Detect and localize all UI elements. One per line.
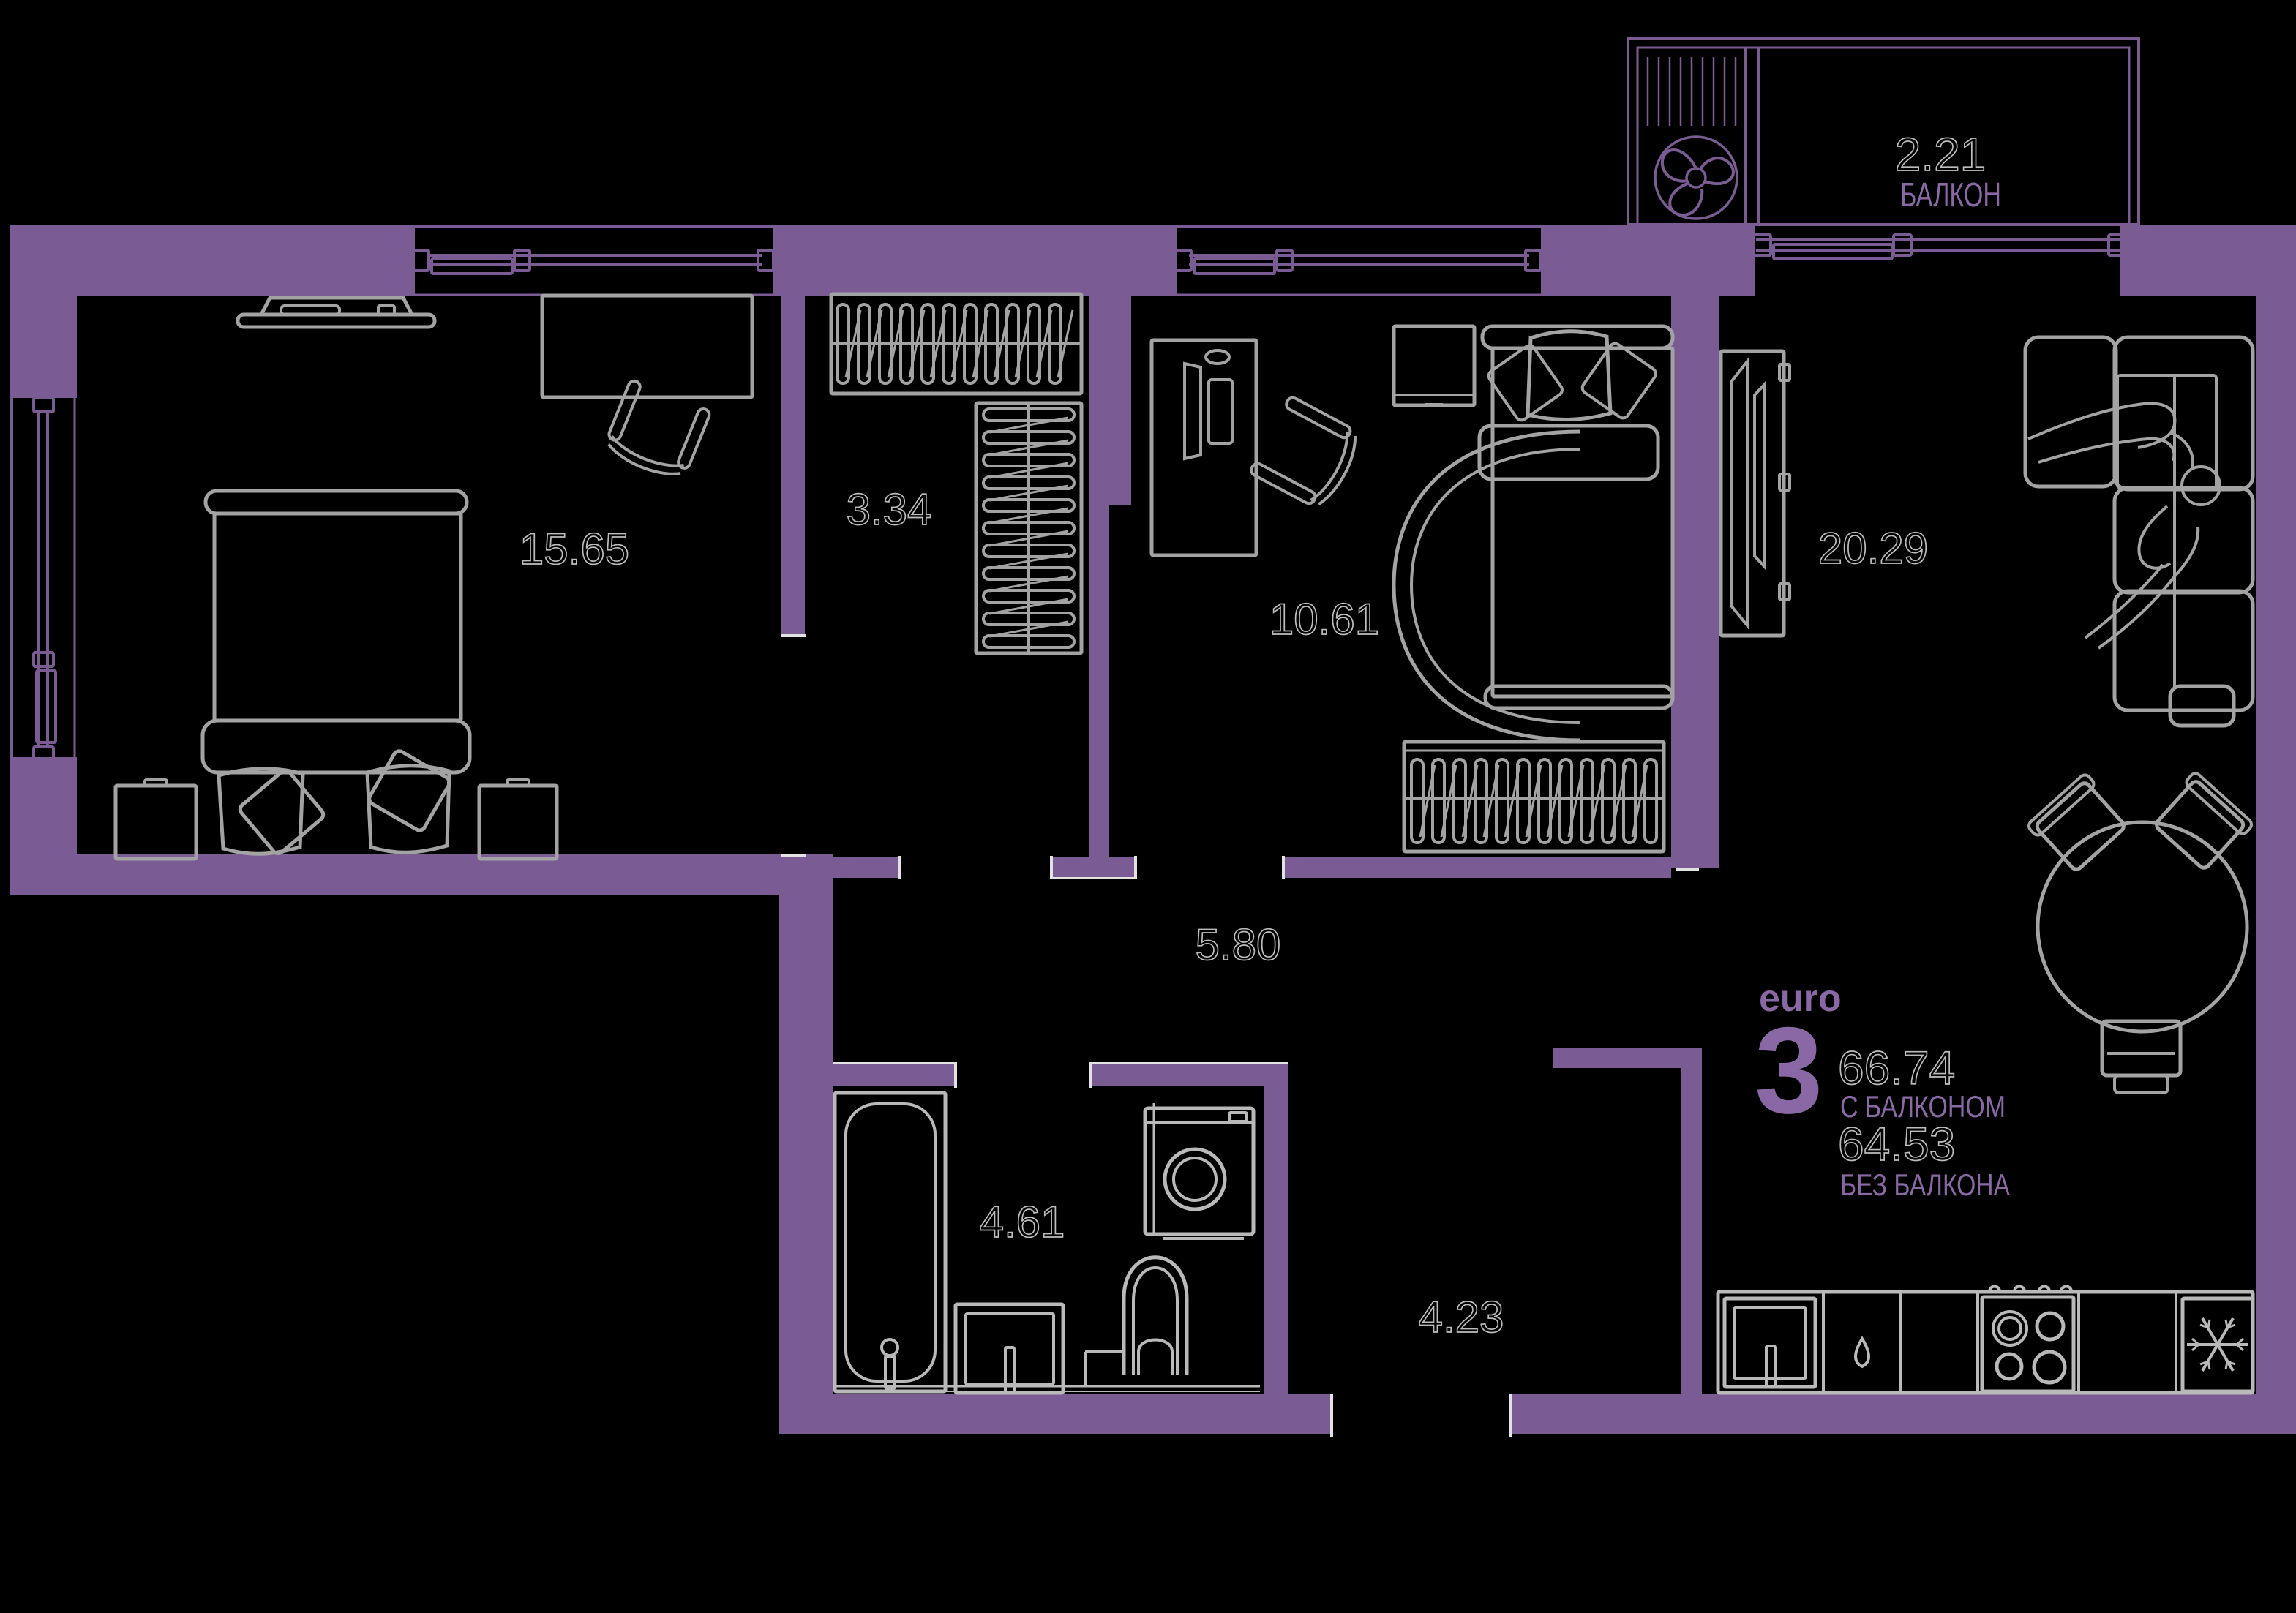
svg-text:3: 3 <box>1755 1001 1823 1139</box>
svg-text:5.80: 5.80 <box>1196 920 1281 969</box>
svg-text:БЕЗ БАЛКОНА: БЕЗ БАЛКОНА <box>1840 1168 2010 1202</box>
svg-text:3.34: 3.34 <box>847 485 932 534</box>
svg-text:10.61: 10.61 <box>1269 595 1379 644</box>
svg-text:15.65: 15.65 <box>519 524 629 574</box>
svg-text:4.23: 4.23 <box>1419 1293 1504 1342</box>
svg-text:2.21: 2.21 <box>1895 128 1987 181</box>
svg-text:4.61: 4.61 <box>980 1197 1065 1247</box>
svg-text:БАЛКОН: БАЛКОН <box>1900 176 2001 214</box>
svg-text:20.29: 20.29 <box>1818 524 1928 573</box>
svg-text:64.53: 64.53 <box>1838 1118 1955 1170</box>
svg-text:66.74: 66.74 <box>1838 1042 1955 1094</box>
